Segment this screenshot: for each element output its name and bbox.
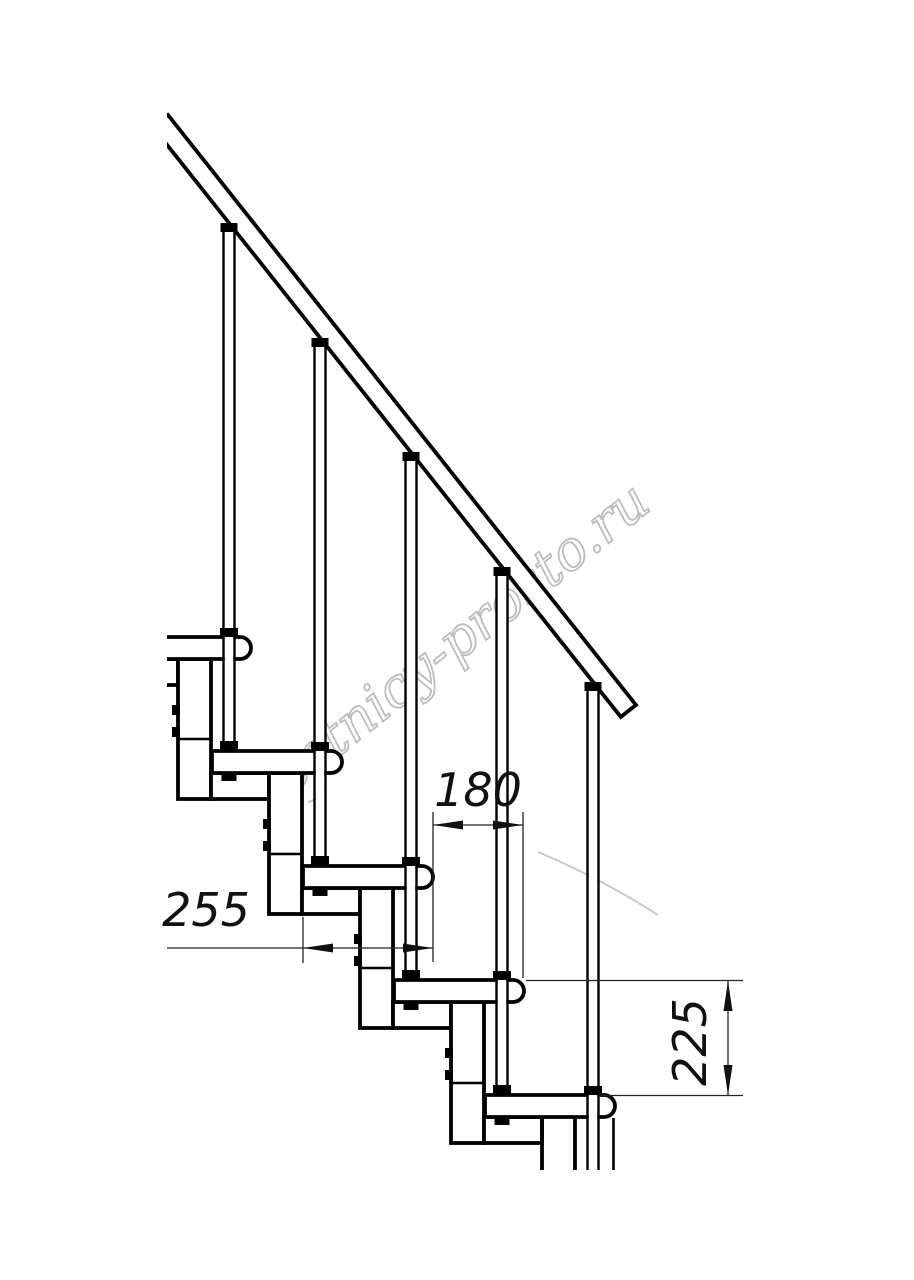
left-crop-mask xyxy=(0,0,167,1280)
clamp-bolt-icon xyxy=(172,727,180,737)
clamp-bolt-icon xyxy=(445,1070,453,1080)
dimension-step-run: 180 xyxy=(433,763,523,978)
bracket-strip xyxy=(302,888,360,914)
dimension-step-rise: 225 xyxy=(526,981,743,1096)
clamp-bolt-icon xyxy=(445,1048,453,1058)
module-column xyxy=(542,1117,575,1170)
clamp-bolt-icon xyxy=(263,841,271,851)
clamp-bolt-icon xyxy=(172,705,180,715)
rail-connector-icon xyxy=(221,223,238,232)
baluster-foot-icon xyxy=(311,856,329,866)
baluster-foot-icon xyxy=(493,1085,511,1095)
dim-label-180: 180 xyxy=(434,763,522,817)
dim-arrow-left-icon xyxy=(433,821,463,830)
baluster-collar-icon xyxy=(220,628,238,637)
bracket-strip xyxy=(393,1002,451,1028)
dim-arrow-right-icon xyxy=(403,944,433,953)
dim-arrow-down-icon xyxy=(724,1065,733,1095)
staircase-technical-drawing: lestnicy-prosto.ru xyxy=(0,0,914,1280)
module-column xyxy=(178,659,211,799)
rail-connector-icon xyxy=(403,452,420,461)
baluster-foot-icon xyxy=(220,741,238,751)
clamp-bolt-icon xyxy=(263,819,271,829)
rail-connector-icon xyxy=(585,682,602,691)
bracket-strip xyxy=(484,1117,542,1143)
dim-label-225: 225 xyxy=(663,998,717,1086)
rail-connector-icon xyxy=(494,567,511,576)
baluster-foot-icon xyxy=(402,970,420,980)
baluster-collar-icon xyxy=(402,857,420,866)
dim-label-255: 255 xyxy=(162,883,250,937)
baluster-collar-icon xyxy=(584,1086,602,1095)
baluster-nut-icon xyxy=(313,889,328,896)
bracket-strip xyxy=(211,773,269,799)
baluster-collar-icon xyxy=(311,742,329,751)
baluster-collar-icon xyxy=(493,971,511,980)
baluster-nut-icon xyxy=(222,774,237,781)
module-column xyxy=(360,888,393,1028)
module-column xyxy=(451,1002,484,1143)
baluster-nut-icon xyxy=(495,1118,510,1125)
tread xyxy=(160,637,251,659)
clamp-bolt-icon xyxy=(354,956,362,966)
dim-arrow-up-icon xyxy=(724,981,733,1011)
baluster-nut-icon xyxy=(404,1003,419,1010)
clamp-bolt-icon xyxy=(354,934,362,944)
module-column xyxy=(269,773,302,914)
rail-connector-icon xyxy=(312,338,329,347)
dim-arrow-left-icon xyxy=(303,944,333,953)
